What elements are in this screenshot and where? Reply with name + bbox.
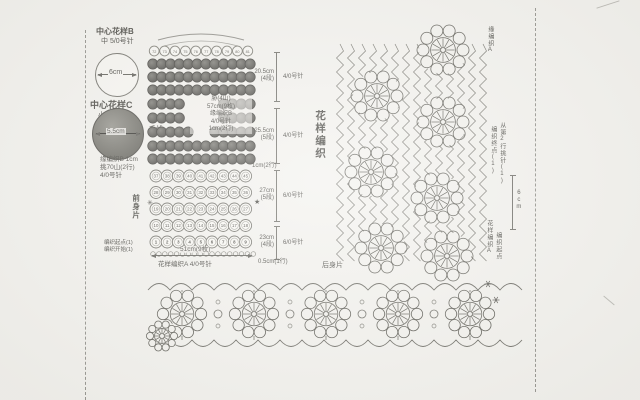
svg-text:30: 30	[176, 190, 181, 195]
svg-text:40: 40	[187, 174, 192, 179]
svg-text:15: 15	[210, 223, 215, 228]
pattern-side-label: 从第2行挑针(1)	[498, 122, 505, 185]
svg-text:42: 42	[210, 174, 215, 179]
bottom-width-label: 51cm(9枚)	[180, 246, 210, 253]
scan-artifact-mark	[596, 0, 619, 8]
scanned-pattern-page: 中心花样B 中 5/0号针 6cm 中心花样C 小 4/0号针 5.5cm 毛线…	[0, 0, 640, 400]
svg-text:32: 32	[198, 190, 203, 195]
svg-text:18: 18	[243, 223, 248, 228]
svg-text:39: 39	[176, 174, 181, 179]
dimension-arrow-icon	[276, 170, 277, 222]
svg-text:76: 76	[194, 50, 198, 54]
svg-text:33: 33	[210, 190, 215, 195]
mid-note-line: 胁(4山)	[190, 96, 252, 104]
right-star-marker-icon: ★	[254, 199, 260, 207]
svg-text:34: 34	[221, 190, 226, 195]
front-piece-label: 前身片	[131, 194, 140, 220]
pattern-side-label: 编织终点(1)	[489, 126, 496, 175]
edge-note-line: 缘编织B 1cm	[100, 156, 138, 163]
svg-text:22: 22	[187, 207, 192, 212]
svg-text:45: 45	[243, 174, 248, 179]
pattern-top-label: 缘编织A	[486, 26, 493, 54]
svg-text:73: 73	[162, 50, 166, 54]
dimension-label: 20.5cm(4段)	[250, 69, 274, 83]
needle-label: 4/0号针	[283, 133, 303, 140]
svg-text:12: 12	[176, 223, 181, 228]
right-torn-edge-line	[535, 8, 536, 392]
pattern-bottom-label: 花样编织A	[485, 220, 492, 255]
svg-text:20: 20	[165, 207, 170, 212]
svg-text:16: 16	[221, 223, 226, 228]
svg-text:75: 75	[183, 50, 187, 54]
bottom-pattern-label: 花样编织A 4/0号针	[158, 261, 212, 268]
svg-text:31: 31	[187, 190, 192, 195]
dimension-arrow-icon	[276, 52, 277, 102]
waist-note: 1cm(2行)	[252, 163, 277, 170]
svg-text:25: 25	[221, 207, 226, 212]
svg-text:11: 11	[165, 223, 170, 228]
svg-text:35: 35	[232, 190, 237, 195]
border-panel-label: 后身片	[322, 262, 343, 270]
front-piece-motif-diagram: 7273747576777879808137383940414243444528…	[148, 26, 254, 268]
svg-text:27: 27	[243, 207, 248, 212]
dimension-label: 23cm(4段)	[250, 235, 274, 249]
motif-b-circle: 6cm	[95, 53, 139, 97]
width-arrow-icon	[152, 255, 252, 256]
motif-c-circle: 5.5cm	[92, 108, 144, 160]
edge-note-line: 4/0号针	[100, 172, 122, 179]
start-note-line: 编织起点(1)	[104, 240, 133, 246]
svg-text:37: 37	[154, 174, 159, 179]
pattern-height-label: 6cm	[515, 190, 522, 211]
pattern-bottom-label: 编织起点	[494, 232, 501, 260]
needle-label: 6/0号针	[283, 193, 303, 200]
left-page-fold-line	[85, 30, 86, 400]
svg-text:41: 41	[198, 174, 203, 179]
svg-text:80: 80	[235, 50, 239, 54]
svg-text:19: 19	[154, 207, 159, 212]
needle-label: 4/0号针	[283, 74, 303, 81]
svg-text:14: 14	[198, 223, 203, 228]
start-note-line: 编织开始(1)	[104, 247, 133, 253]
svg-text:77: 77	[204, 50, 208, 54]
motif-c-size: 5.5cm	[106, 128, 126, 135]
mid-note-line: 缘编织B	[190, 111, 252, 119]
mid-note-line: 57cm(9枚)	[190, 104, 252, 112]
motif-b-title: 中心花样B	[96, 27, 134, 36]
svg-text:36: 36	[243, 190, 248, 195]
svg-text:29: 29	[165, 190, 170, 195]
mid-note-line: 1cm(2行)	[190, 126, 252, 134]
svg-text:23: 23	[198, 207, 203, 212]
border-edging-chart	[148, 274, 506, 358]
svg-text:28: 28	[154, 190, 159, 195]
pattern-height-arrow-icon	[512, 175, 513, 230]
svg-text:13: 13	[187, 223, 192, 228]
svg-text:81: 81	[246, 50, 250, 54]
mid-note-line: 4/0号针	[190, 119, 252, 127]
svg-text:44: 44	[232, 174, 237, 179]
svg-text:26: 26	[232, 207, 237, 212]
svg-text:78: 78	[214, 50, 218, 54]
svg-text:38: 38	[165, 174, 170, 179]
motif-b-needle: 中 5/0号针	[101, 38, 134, 46]
svg-text:79: 79	[225, 50, 229, 54]
dimension-label: 25.5cm(5段)	[250, 128, 274, 142]
svg-text:17: 17	[232, 223, 237, 228]
hem-note: 0.5cm(1行)	[258, 259, 288, 266]
svg-text:21: 21	[176, 207, 181, 212]
left-star-marker-icon: ✳	[147, 200, 153, 208]
scan-artifact-mark	[603, 296, 614, 306]
svg-text:24: 24	[210, 207, 215, 212]
svg-text:72: 72	[152, 50, 156, 54]
motif-b-size: 6cm	[108, 69, 123, 77]
dimension-arrow-icon	[276, 108, 277, 164]
dimension-arrow-icon	[276, 226, 277, 260]
svg-text:10: 10	[154, 223, 159, 228]
pattern-panel-title: 花样编织	[314, 110, 326, 160]
svg-text:43: 43	[221, 174, 226, 179]
garment-mid-notes: 胁(4山) 57cm(9枚) 缘编织B 4/0号针 1cm(2行)	[190, 96, 252, 134]
needle-label: 6/0号针	[283, 240, 303, 247]
svg-text:74: 74	[173, 50, 177, 54]
stitch-pattern-chart	[335, 42, 487, 264]
edge-note-line: 挑70山(2行)	[100, 164, 135, 171]
